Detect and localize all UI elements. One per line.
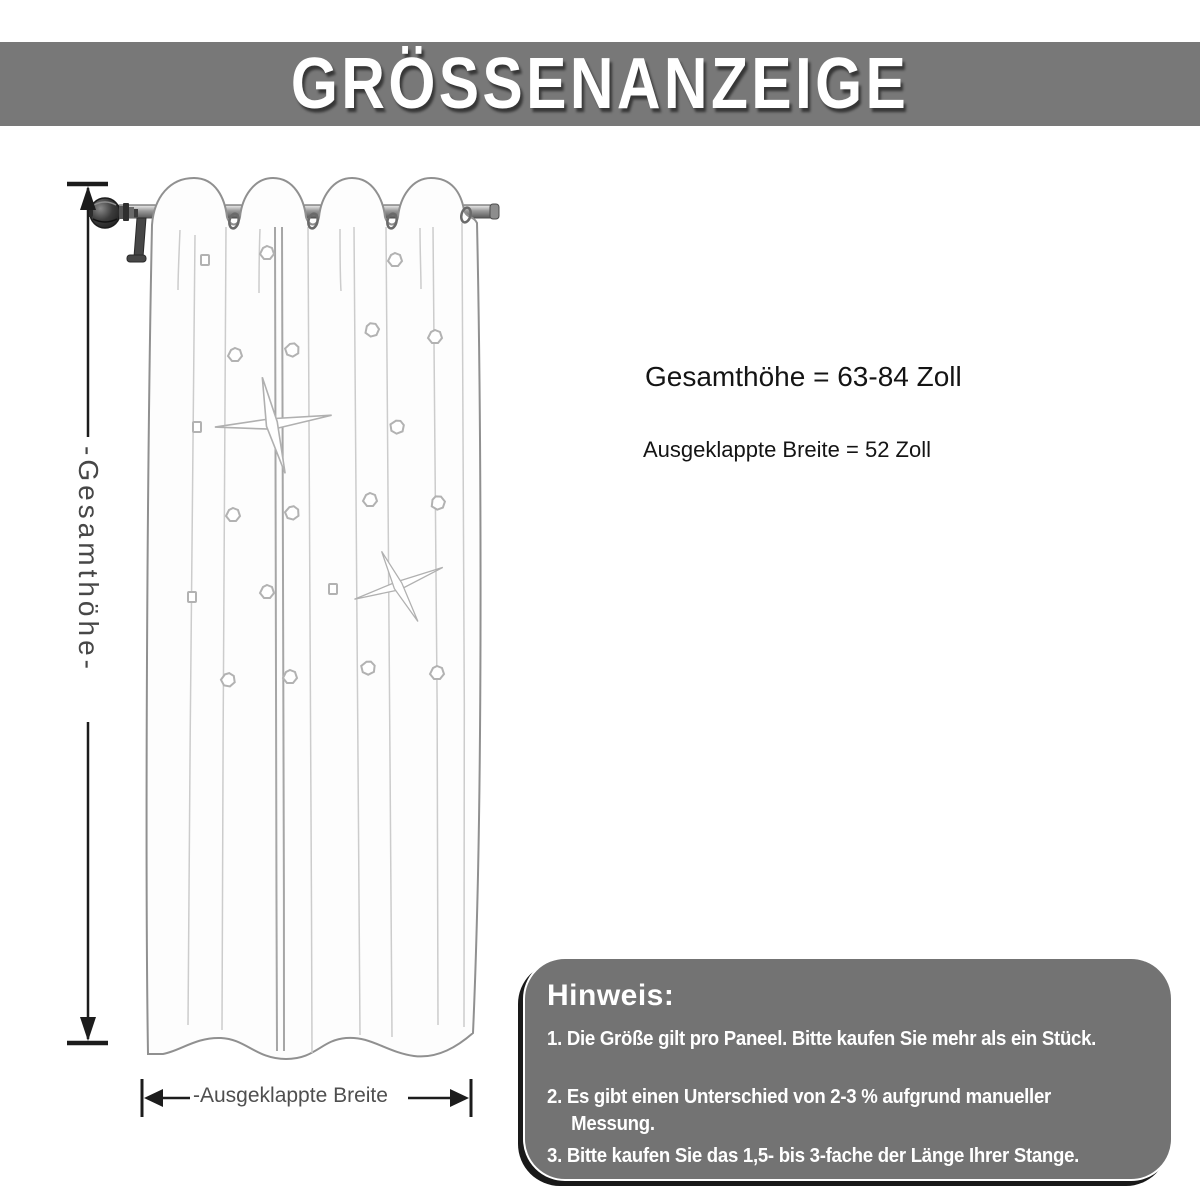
rod-finial (88, 198, 138, 228)
note-item-2: 2. Es gibt einen Unterschied von 2-3 % a… (547, 1084, 1111, 1138)
curtain-panel (147, 178, 481, 1059)
notes-title: Hinweis: (547, 979, 1153, 1013)
page-title: GRÖSSENANZEIGE (291, 42, 909, 126)
note-item-1: 1. Die Größe gilt pro Paneel. Bitte kauf… (547, 1026, 1111, 1053)
rod-end-cap (490, 204, 499, 219)
arrow-up-icon (80, 186, 96, 210)
arrow-down-icon (80, 1017, 96, 1041)
arrow-left-icon (144, 1089, 163, 1107)
total-height-label: -Gesamthöhe- (72, 446, 104, 706)
note-item-3: 3. Bitte kaufen Sie das 1,5- bis 3-fache… (547, 1143, 1111, 1170)
notes-box: Hinweis: 1. Die Größe gilt pro Paneel. B… (523, 957, 1173, 1181)
total-height-value: Gesamthöhe = 63-84 Zoll (645, 361, 962, 393)
unfolded-width-label: -Ausgeklappte Breite (193, 1084, 405, 1108)
header-banner: GRÖSSENANZEIGE (0, 42, 1200, 126)
arrow-right-icon (450, 1089, 469, 1107)
curtain-diagram (30, 165, 570, 1165)
rod-bracket (127, 218, 146, 262)
size-guide-infographic: GRÖSSENANZEIGE Gesamthöhe = 63-84 Zoll A… (0, 0, 1200, 1200)
unfolded-width-value: Ausgeklappte Breite = 52 Zoll (643, 437, 931, 463)
